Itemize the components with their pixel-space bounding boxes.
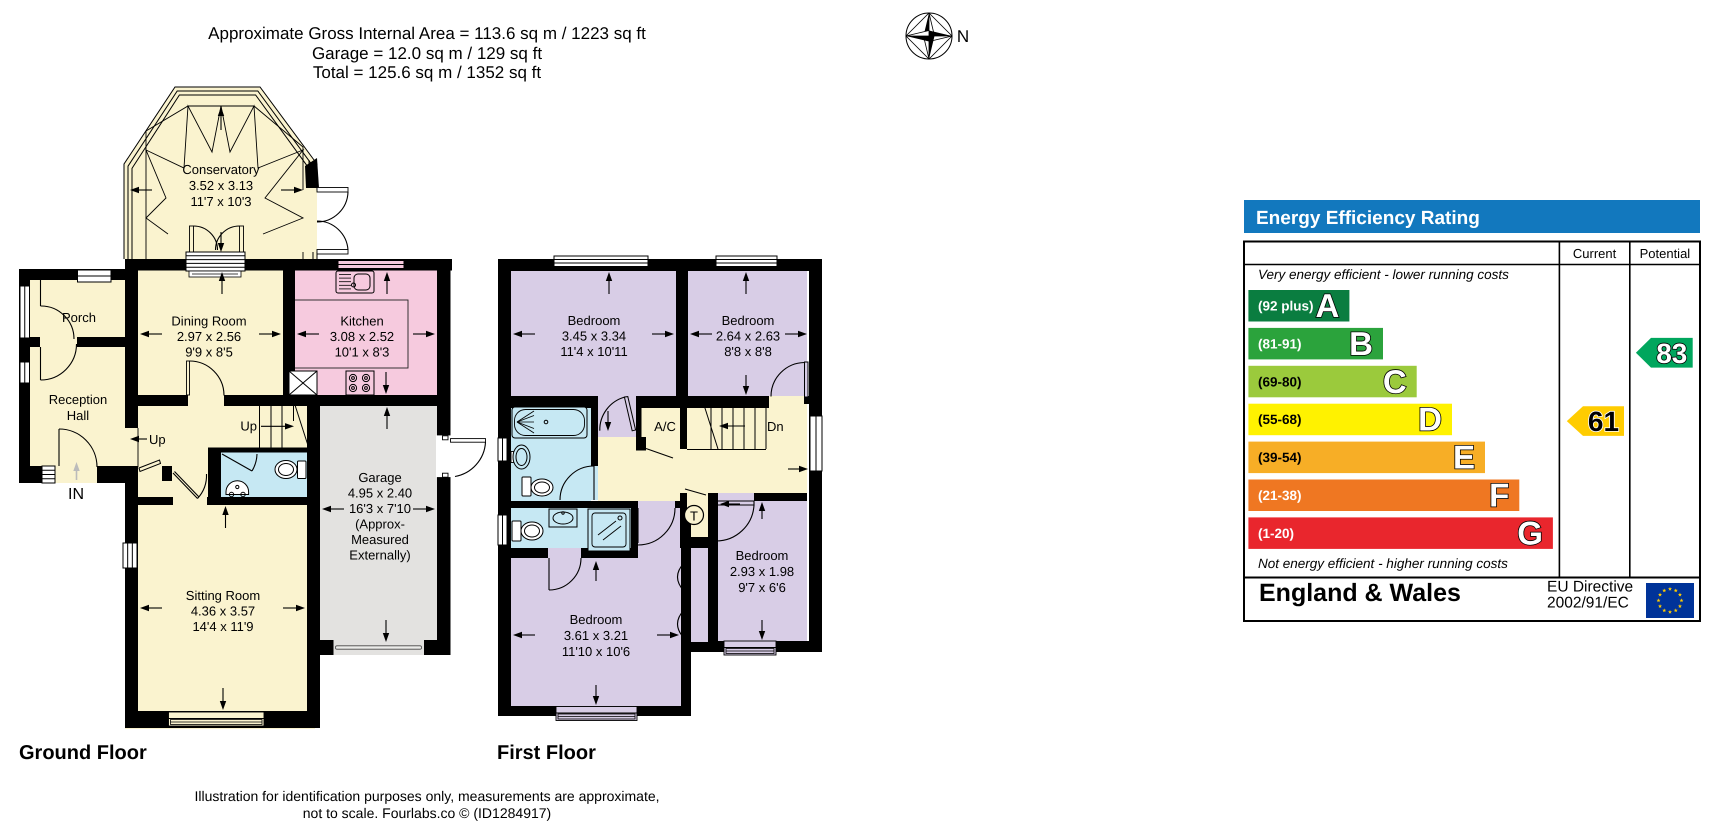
svg-text:IN: IN xyxy=(68,486,84,503)
svg-text:11'7 x 10'3: 11'7 x 10'3 xyxy=(190,194,251,209)
svg-text:3.45 x 3.34: 3.45 x 3.34 xyxy=(562,329,626,344)
svg-text:3.08 x 2.52: 3.08 x 2.52 xyxy=(330,329,394,344)
svg-text:Hall: Hall xyxy=(67,408,90,423)
svg-text:16'3 x 7'10: 16'3 x 7'10 xyxy=(349,501,411,516)
svg-text:Total = 125.6 sq m / 1352 sq f: Total = 125.6 sq m / 1352 sq ft xyxy=(313,63,541,82)
svg-text:4.36 x 3.57: 4.36 x 3.57 xyxy=(191,604,255,619)
svg-text:(81-91): (81-91) xyxy=(1258,336,1302,351)
svg-text:11'10 x 10'6: 11'10 x 10'6 xyxy=(562,644,630,659)
svg-text:Reception: Reception xyxy=(49,392,108,407)
svg-text:Up: Up xyxy=(149,432,166,447)
svg-text:11'4 x 10'11: 11'4 x 10'11 xyxy=(560,344,627,359)
svg-text:Sitting Room: Sitting Room xyxy=(186,588,260,603)
svg-text:First Floor: First Floor xyxy=(497,742,596,764)
svg-text:Measured: Measured xyxy=(351,532,409,547)
svg-text:Conservatory: Conservatory xyxy=(182,162,260,177)
svg-text:N: N xyxy=(957,27,969,46)
svg-text:Garage: Garage xyxy=(358,470,401,485)
svg-text:E: E xyxy=(1453,439,1475,476)
svg-text:61: 61 xyxy=(1588,406,1619,437)
svg-text:England & Wales: England & Wales xyxy=(1259,579,1461,607)
svg-text:B: B xyxy=(1349,325,1373,362)
svg-text:2.64 x 2.63: 2.64 x 2.63 xyxy=(716,329,780,344)
svg-text:(55-68): (55-68) xyxy=(1258,412,1302,427)
svg-text:9'9 x 8'5: 9'9 x 8'5 xyxy=(185,345,233,360)
svg-text:9'7 x 6'6: 9'7 x 6'6 xyxy=(738,580,786,595)
svg-text:Bedroom: Bedroom xyxy=(570,612,623,627)
svg-text:Garage = 12.0 sq m / 129 sq ft: Garage = 12.0 sq m / 129 sq ft xyxy=(312,44,542,63)
svg-text:D: D xyxy=(1418,401,1442,438)
svg-text:Not energy efficient - higher: Not energy efficient - higher running co… xyxy=(1258,556,1508,571)
svg-text:(Approx-: (Approx- xyxy=(355,517,405,532)
svg-text:A/C: A/C xyxy=(654,419,676,434)
svg-text:Ground Floor: Ground Floor xyxy=(19,742,147,764)
svg-text:Illustration for identificatio: Illustration for identification purposes… xyxy=(194,788,659,804)
svg-text:(69-80): (69-80) xyxy=(1258,374,1302,389)
svg-text:Porch: Porch xyxy=(62,310,96,325)
svg-text:2002/91/EC: 2002/91/EC xyxy=(1547,595,1629,612)
svg-text:3.52 x 3.13: 3.52 x 3.13 xyxy=(189,178,253,193)
svg-text:3.61 x 3.21: 3.61 x 3.21 xyxy=(564,628,628,643)
svg-text:2.97 x 2.56: 2.97 x 2.56 xyxy=(177,329,241,344)
svg-text:T: T xyxy=(690,509,698,524)
svg-text:Energy Efficiency Rating: Energy Efficiency Rating xyxy=(1256,208,1480,229)
svg-text:EU Directive: EU Directive xyxy=(1547,579,1633,596)
svg-text:Externally): Externally) xyxy=(349,548,410,563)
svg-text:83: 83 xyxy=(1656,338,1687,369)
svg-text:(39-54): (39-54) xyxy=(1258,450,1302,465)
svg-text:Kitchen: Kitchen xyxy=(340,314,383,329)
svg-text:8'8 x 8'8: 8'8 x 8'8 xyxy=(724,344,772,359)
svg-text:14'4 x 11'9: 14'4 x 11'9 xyxy=(192,619,253,634)
svg-text:Up: Up xyxy=(240,419,257,434)
svg-text:G: G xyxy=(1517,514,1543,551)
svg-text:2.93 x 1.98: 2.93 x 1.98 xyxy=(730,564,794,579)
svg-text:Dn: Dn xyxy=(767,419,784,434)
svg-text:10'1 x 8'3: 10'1 x 8'3 xyxy=(335,345,390,360)
svg-text:A: A xyxy=(1316,287,1340,324)
svg-text:C: C xyxy=(1383,363,1407,400)
svg-text:Potential: Potential xyxy=(1640,246,1691,261)
svg-text:4.95 x 2.40: 4.95 x 2.40 xyxy=(348,486,412,501)
svg-text:(92 plus): (92 plus) xyxy=(1258,299,1314,314)
svg-text:Bedroom: Bedroom xyxy=(722,313,775,328)
svg-text:Approximate Gross Internal Are: Approximate Gross Internal Area = 113.6 … xyxy=(208,24,646,43)
svg-text:Bedroom: Bedroom xyxy=(736,548,789,563)
svg-text:Bedroom: Bedroom xyxy=(568,313,621,328)
svg-text:(21-38): (21-38) xyxy=(1258,488,1302,503)
svg-text:Dining Room: Dining Room xyxy=(171,314,246,329)
svg-text:Very energy efficient - lower: Very energy efficient - lower running co… xyxy=(1258,267,1509,282)
svg-text:(1-20): (1-20) xyxy=(1258,526,1294,541)
svg-text:F: F xyxy=(1489,477,1509,514)
svg-text:not to scale. Fourlabs.co © (I: not to scale. Fourlabs.co © (ID1284917) xyxy=(303,805,551,821)
svg-text:Current: Current xyxy=(1573,246,1617,261)
